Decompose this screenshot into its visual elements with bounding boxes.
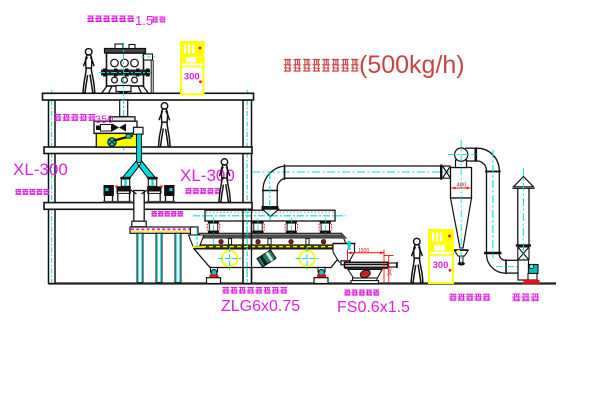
svg-text:(500kg/h): (500kg/h) [359, 51, 465, 79]
svg-text:FS0.6x1.5: FS0.6x1.5 [337, 299, 410, 316]
svg-text:ZLG6x0.75: ZLG6x0.75 [221, 298, 300, 315]
svg-text:350: 350 [95, 114, 113, 126]
svg-text:345: 345 [388, 267, 394, 276]
svg-text:1500: 1500 [358, 248, 369, 254]
svg-text:1.5: 1.5 [135, 13, 153, 28]
svg-text:300: 300 [433, 260, 449, 271]
svg-text:300: 300 [184, 72, 200, 83]
svg-text:XL-300: XL-300 [13, 160, 68, 179]
